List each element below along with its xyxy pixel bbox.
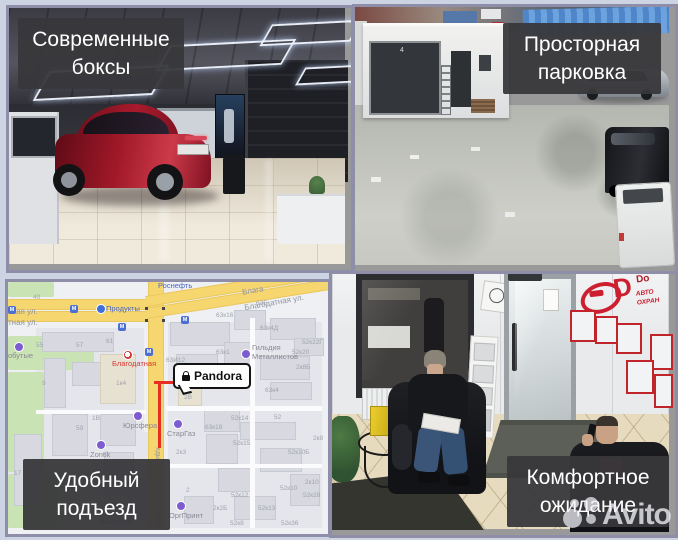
floor-reflection [265, 160, 273, 260]
building-number: 52к36 [281, 520, 298, 527]
license-plate [177, 144, 209, 155]
metro-icon: М [8, 306, 16, 314]
building-number: 2к10 [305, 479, 319, 486]
poi-icon [241, 349, 251, 359]
traffic-light-icon [162, 307, 165, 310]
poi-icon [96, 440, 106, 450]
door-glare [515, 279, 555, 399]
building-number: 2к3 [176, 449, 186, 456]
building-number: 2к8 [313, 435, 323, 442]
building-number: 52к20 [292, 349, 309, 356]
poster-product [224, 109, 234, 143]
building-number: 1к4 [116, 380, 126, 387]
shoe [418, 472, 440, 483]
poi-label: Роснефть [158, 282, 192, 291]
avito-logo-dot [584, 497, 598, 511]
building-number: 17 [14, 470, 21, 477]
building-number: 63к4Д [260, 325, 278, 332]
shoe [448, 475, 470, 486]
door-number: 4 [395, 47, 409, 54]
building-number: 52к13 [258, 505, 275, 512]
white-truck [481, 9, 501, 19]
building-number: 52к8 [230, 520, 244, 527]
certificate-frame [595, 316, 618, 344]
park-area [8, 282, 54, 297]
street-name: тная ул. [8, 318, 38, 327]
sign-sketch [488, 287, 505, 304]
map-building [170, 322, 230, 346]
hair [596, 416, 618, 426]
building-number: 9 [42, 380, 46, 387]
building-number: 52к14 [231, 415, 248, 422]
logo-letter: D [611, 271, 633, 304]
building-number: 52к28 [303, 492, 320, 499]
dark-door [451, 51, 471, 107]
white-cabinet [277, 194, 345, 244]
brochure [473, 343, 495, 362]
paint-mark [410, 155, 419, 159]
building-number: 63к1 [216, 349, 230, 356]
building-number: 52к15 [233, 440, 250, 447]
poi-icon [173, 419, 183, 429]
street-name-vertical: хды [154, 447, 161, 460]
building-number: 63к16 [216, 312, 233, 319]
metro-icon: М [181, 316, 189, 324]
wheel-rim [61, 172, 77, 188]
plant [329, 416, 360, 482]
traffic-light-icon [145, 307, 148, 310]
building-number: 52к22Г [302, 339, 323, 346]
metro-icon: М [145, 348, 153, 356]
building-number: 55 [36, 342, 43, 349]
building-number: 63к4 [265, 387, 279, 394]
brochure [472, 365, 494, 384]
poi-label: Продукты [106, 305, 140, 314]
logo-name-fragment: Do [635, 273, 650, 286]
building-number: 57 [76, 342, 83, 349]
building-number: 1В [92, 415, 100, 422]
metro-icon: М [70, 305, 78, 313]
route-line [158, 382, 161, 448]
avito-watermark: Avito [562, 496, 674, 536]
building-number: 52к12 [231, 492, 248, 499]
poi-icon [133, 411, 143, 421]
hand [582, 434, 593, 446]
poi-label: СтарГаз [167, 430, 195, 439]
van-taillight [619, 233, 624, 241]
taillight [185, 136, 207, 140]
pandora-marker-label: Pandora [194, 369, 242, 383]
building-number: 2к2Б [213, 505, 227, 512]
map-building [44, 358, 66, 408]
van-window [623, 188, 664, 204]
avito-wordmark: Avito [602, 498, 671, 532]
jeans-leg [440, 427, 469, 475]
building-number: 61 [106, 338, 113, 345]
map-building [206, 434, 238, 464]
listing-collage: DX90 4 [0, 0, 678, 540]
caption-parking: Просторная парковка [503, 23, 661, 94]
blue-container [443, 11, 477, 23]
building-number: 2В [184, 394, 192, 401]
map-building [240, 422, 296, 440]
building-number: 52к10Б [288, 449, 310, 456]
car-shadow [61, 186, 219, 206]
poi-icon [96, 304, 106, 314]
building-number: 52к10 [280, 485, 297, 492]
map-building [52, 414, 88, 456]
logo-line2: ОХРАН [637, 297, 660, 307]
certificate-frame [570, 310, 596, 342]
metro-icon: М [118, 323, 126, 331]
building-number: 52 [274, 414, 281, 421]
building-number: 63Б [256, 300, 268, 307]
building-number: 2 [186, 487, 190, 494]
building-number: 40 [33, 294, 40, 301]
paint-mark [371, 177, 381, 182]
minor-road [36, 410, 146, 414]
paint-mark [471, 147, 480, 151]
cross-h [125, 353, 130, 356]
poi-label: обутые [8, 352, 33, 361]
map-building [218, 468, 254, 492]
traffic-light-icon [162, 319, 165, 322]
building-number: 2к8Б [296, 364, 310, 371]
paint-mark [505, 212, 515, 217]
logo-line1: АВТО [635, 289, 654, 298]
building-number: 63к18 [205, 424, 222, 431]
plant [309, 176, 325, 194]
avito-logo-dot [563, 509, 582, 528]
pandora-marker: Pandora [173, 363, 251, 389]
avito-logo-dot [586, 514, 596, 524]
poi-label: Благодатная [112, 360, 156, 369]
building-number: 59 [76, 425, 83, 432]
door-closer [508, 273, 542, 281]
poi-label: Юрсфера [123, 422, 157, 431]
caption-garage: Современные боксы [18, 18, 184, 89]
minor-road [166, 464, 322, 468]
certificate-frame [654, 374, 673, 408]
poi-icon [176, 501, 186, 511]
armrest [392, 424, 412, 470]
poi-label: ОргПринт [169, 512, 203, 521]
padlock-icon [182, 375, 190, 381]
traffic-light-icon [145, 319, 148, 322]
certificate-frame [626, 360, 654, 394]
partition-window [11, 116, 57, 158]
ladder [441, 65, 451, 115]
caption-entrance: Удобный подъезд [23, 459, 170, 530]
wheel-rim [156, 173, 174, 191]
avito-logo-dot [570, 499, 579, 508]
office-chair [223, 154, 245, 194]
glass-door [504, 274, 576, 432]
minor-road [166, 406, 322, 411]
window [479, 55, 491, 71]
certificate-frame [616, 323, 642, 354]
pallets [471, 99, 495, 113]
led-light [295, 64, 354, 85]
suv-window [611, 133, 655, 145]
